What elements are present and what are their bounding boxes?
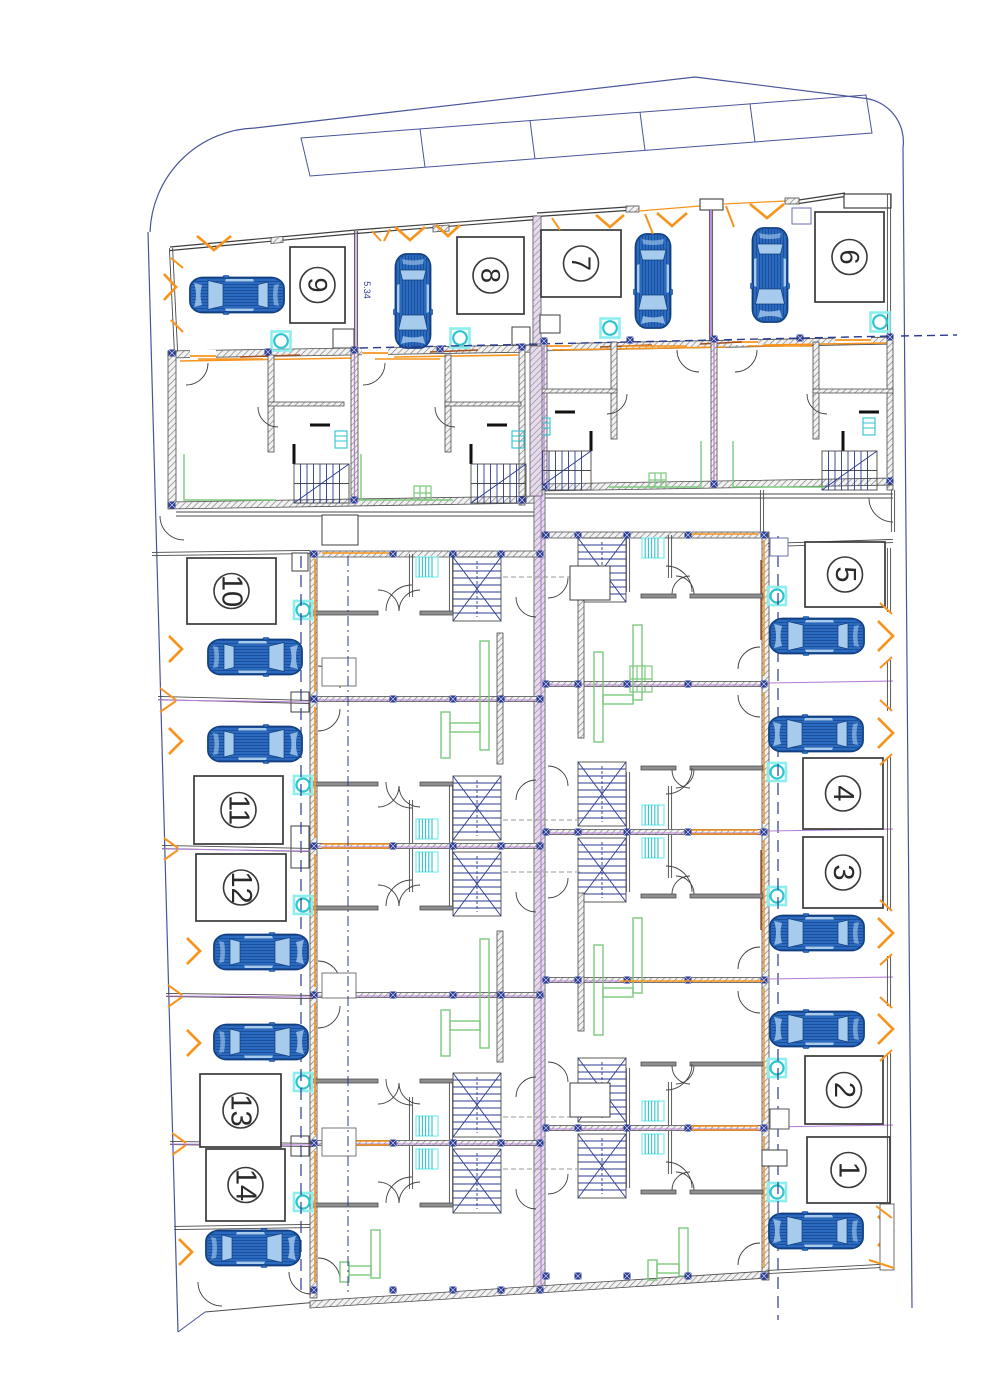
svg-text:5.34: 5.34 — [362, 281, 372, 299]
svg-text:14: 14 — [230, 1169, 262, 1201]
svg-text:6: 6 — [835, 249, 865, 264]
svg-text:3: 3 — [827, 864, 859, 880]
svg-text:2: 2 — [828, 1082, 860, 1098]
svg-text:7: 7 — [566, 256, 596, 271]
svg-text:9: 9 — [303, 277, 333, 292]
svg-text:8: 8 — [476, 268, 506, 283]
svg-text:4: 4 — [827, 785, 859, 801]
svg-text:5: 5 — [829, 566, 861, 582]
svg-text:13: 13 — [225, 1094, 257, 1126]
svg-text:1: 1 — [833, 1162, 865, 1178]
svg-text:10: 10 — [216, 575, 248, 607]
svg-text:11: 11 — [223, 795, 255, 825]
svg-text:12: 12 — [225, 871, 257, 903]
